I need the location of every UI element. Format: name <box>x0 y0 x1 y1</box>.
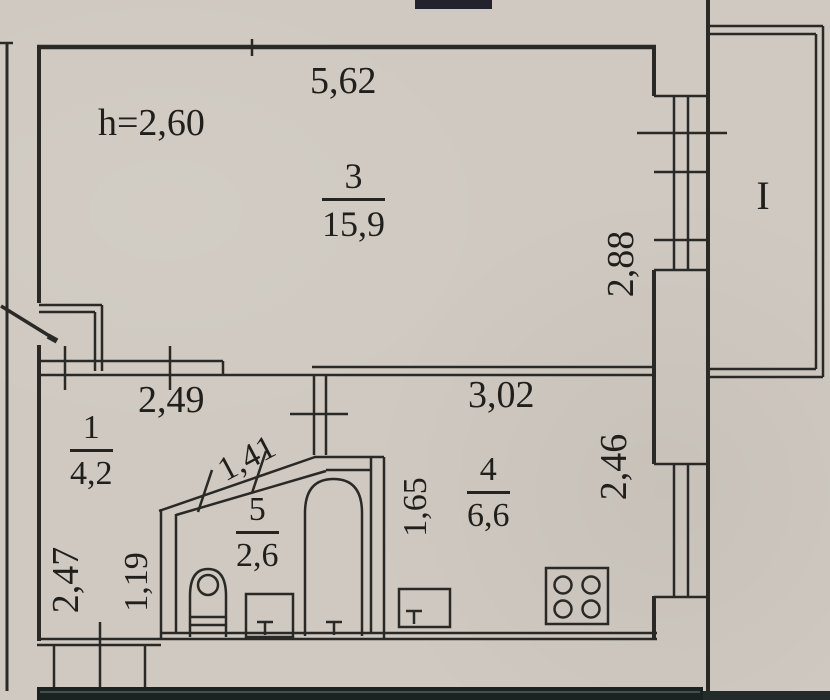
toilet-symbol <box>190 569 226 637</box>
room3-width-dim: 5,62 <box>310 62 377 100</box>
stove-symbol <box>546 568 608 624</box>
bath-area: 2,6 <box>236 534 279 575</box>
kitchen-label: 4 6,6 <box>467 451 510 535</box>
entrance-door-leaf-end <box>48 336 57 341</box>
scan-artifact-top-bar <box>415 0 492 9</box>
stove-burner-2 <box>583 577 600 594</box>
kitchen-sink-drain-mark <box>406 611 422 624</box>
room3-label: 3 15,9 <box>322 156 385 245</box>
hall-side-dim: 1,19 <box>120 527 154 637</box>
room3-area: 15,9 <box>322 201 385 244</box>
scan-artifact-bottom-band-right <box>703 691 830 700</box>
hall-width-dim: 2,49 <box>138 381 205 419</box>
ceiling-height-label: h=2,60 <box>98 104 205 142</box>
hall-number: 1 <box>70 409 113 452</box>
stove-burner-1 <box>555 577 572 594</box>
bathtub-symbol <box>305 479 362 636</box>
balcony-mark: I <box>748 176 778 216</box>
kitchen-area: 6,6 <box>467 494 510 535</box>
bath-number: 5 <box>236 491 279 534</box>
toilet-tank-circle <box>198 575 218 595</box>
hall-label: 1 4,2 <box>70 409 113 493</box>
bath-label: 5 2,6 <box>236 491 279 575</box>
kitchen-sink-symbol <box>399 589 450 627</box>
stove-burner-3 <box>555 601 572 618</box>
stove-burner-4 <box>583 601 600 618</box>
scan-artifact-bottom-band <box>37 687 703 700</box>
hall-area: 4,2 <box>70 452 113 493</box>
kitchen-number: 4 <box>467 451 510 494</box>
room3-depth-dim: 2,88 <box>602 204 640 324</box>
floorplan-page: h=2,60 5,62 3 15,9 2,88 2,49 1 4,2 1,41 … <box>0 0 830 700</box>
hall-depth-dim: 2,47 <box>47 520 85 640</box>
kitchen-width-dim: 3,02 <box>468 376 535 414</box>
room3-number: 3 <box>322 156 385 201</box>
kitchen-side-dim: 1,65 <box>399 452 433 562</box>
bath-sink-symbol <box>246 594 293 637</box>
kitchen-depth-dim: 2,46 <box>595 407 633 527</box>
